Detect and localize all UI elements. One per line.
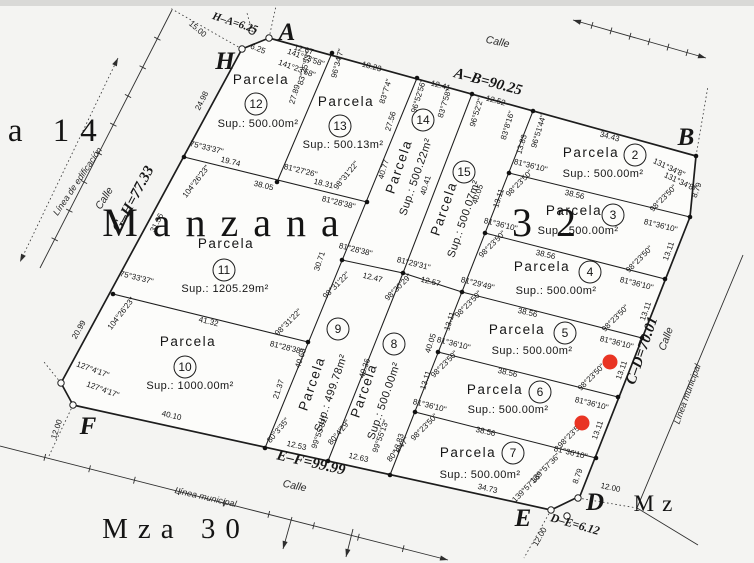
parcel-13-area: Sup.: 500.13m²: [303, 139, 384, 151]
parcel-3-number: 3: [610, 208, 617, 222]
survey-monument-icon: [58, 380, 64, 386]
parcel-5-name: Parcela: [489, 322, 545, 337]
parcel-12-name: Parcela: [233, 72, 289, 87]
vertex-dot: [531, 109, 536, 114]
red-marker: [575, 416, 590, 431]
parcel-6-number: 6: [537, 385, 544, 399]
block-name-text: za 14: [0, 113, 108, 149]
vertex-dot: [483, 231, 488, 236]
parcel-11-area: Sup.: 1205.29m²: [181, 283, 268, 295]
vertex-dot: [616, 395, 621, 400]
parcel-4-name: Parcela: [514, 259, 570, 274]
survey-monument-icon: [239, 46, 245, 52]
corner-letter-e: E: [514, 505, 532, 532]
parcel-2-area: Sup.: 500.00m²: [563, 168, 644, 180]
parcel-4-number: 4: [587, 265, 594, 279]
survey-monument-icon: [70, 402, 76, 408]
block-name-text: Mza 30: [102, 513, 250, 545]
parcel-12-number: 12: [249, 97, 263, 111]
parcel-11-number: 11: [218, 263, 231, 277]
parcel-11-name: Parcela: [198, 236, 254, 251]
vertex-dot: [330, 51, 335, 56]
parcel-13-number: 13: [333, 119, 347, 133]
vertex-dot: [436, 350, 441, 355]
red-marker: [603, 355, 618, 370]
parcel-2-number: 2: [632, 148, 639, 162]
vertex-dot: [507, 171, 512, 176]
parcel-12-area: Sup.: 500.00m²: [218, 118, 299, 130]
vertex-dot: [594, 456, 599, 461]
survey-plan-page: Manzana32za 14Mza 30MzParcela2Sup.: 500.…: [0, 0, 754, 563]
parcel-6-name: Parcela: [467, 382, 523, 397]
parcel-7-number: 7: [510, 446, 517, 460]
corner-letter-f: F: [79, 413, 97, 440]
cadastral-plan-canvas: Manzana32za 14Mza 30MzParcela2Sup.: 500.…: [0, 0, 754, 563]
vertex-dot: [111, 292, 116, 297]
parcel-6-area: Sup.: 500.00m²: [468, 404, 549, 416]
corner-letter-h: H: [214, 48, 236, 75]
parcel-15-number: 15: [457, 165, 471, 179]
parcel-2-name: Parcela: [563, 145, 619, 160]
vertex-dot: [388, 473, 393, 478]
parcel-9-number: 9: [335, 322, 342, 336]
parcel-4-area: Sup.: 500.00m²: [516, 285, 597, 297]
top-edge-band: [0, 0, 754, 6]
survey-monument-icon: [575, 495, 581, 501]
parcel-5-number: 5: [562, 326, 569, 340]
corner-letter-d: D: [585, 489, 604, 516]
vertex-dot: [306, 340, 311, 345]
parcel-3-area: Sup.: 500.00m²: [538, 225, 619, 237]
block-name-text: Mz: [634, 491, 681, 516]
parcel-13-name: Parcela: [318, 94, 374, 109]
vertex-dot: [470, 92, 475, 97]
vertex-dot: [688, 215, 693, 220]
vertex-dot: [413, 410, 418, 415]
parcel-10-name: Parcela: [160, 334, 216, 349]
corner-letter-b: B: [677, 124, 695, 151]
vertex-dot: [263, 446, 268, 451]
vertex-dot: [365, 200, 370, 205]
vertex-dot: [340, 258, 345, 263]
vertex-dot: [694, 154, 699, 159]
vertex-dot: [460, 290, 465, 295]
parcel-14-number: 14: [416, 113, 430, 127]
corner-letter-a: A: [277, 19, 296, 46]
parcel-10-area: Sup.: 1000.00m²: [146, 380, 233, 392]
vertex-dot: [182, 155, 187, 160]
parcel-5-area: Sup.: 500.00m²: [492, 345, 573, 357]
survey-monument-icon: [266, 35, 272, 41]
parcel-7-name: Parcela: [440, 445, 496, 460]
vertex-dot: [275, 180, 280, 185]
parcel-10-number: 10: [178, 360, 192, 374]
parcel-7-area: Sup.: 500.00m²: [440, 469, 521, 481]
parcel-3-name: Parcela: [546, 203, 602, 218]
parcel-8-number: 8: [391, 337, 398, 351]
vertex-dot: [663, 277, 668, 282]
